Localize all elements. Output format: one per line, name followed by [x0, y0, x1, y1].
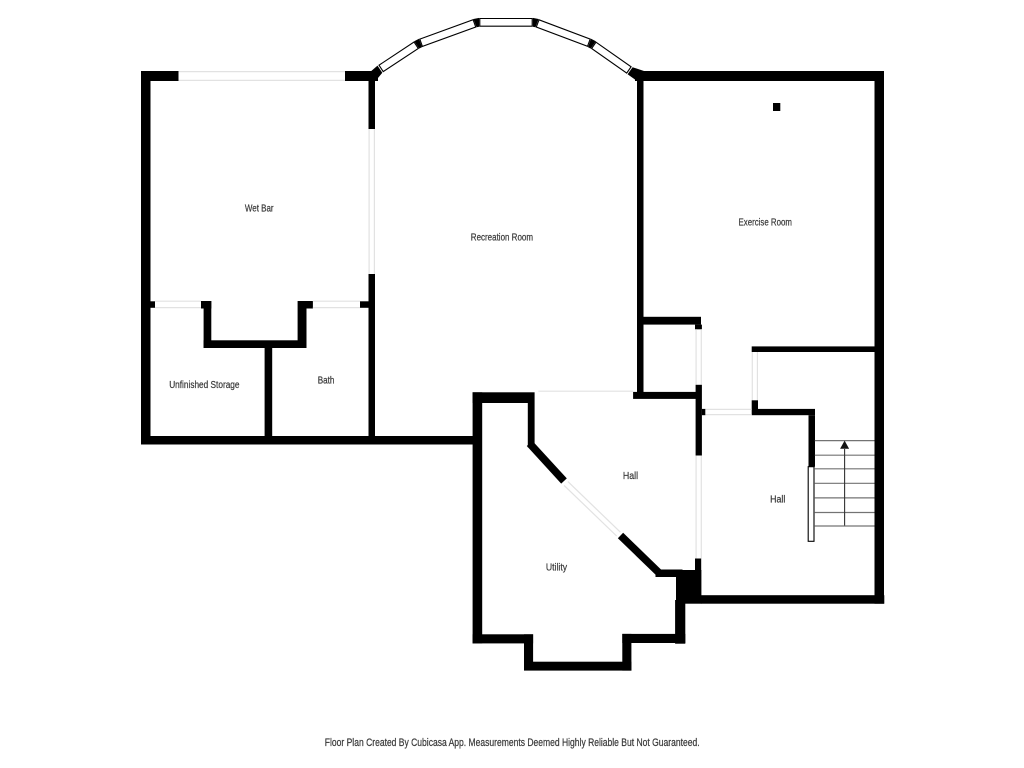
svg-text:Exercise Room: Exercise Room — [739, 217, 792, 228]
svg-text:Unfinished Storage: Unfinished Storage — [169, 380, 240, 391]
svg-text:Hall: Hall — [770, 495, 785, 506]
svg-text:Bath: Bath — [318, 376, 335, 387]
svg-text:Utility: Utility — [546, 563, 567, 574]
svg-text:Wet Bar: Wet Bar — [245, 204, 274, 215]
svg-text:Floor Plan Created By Cubicasa: Floor Plan Created By Cubicasa App. Meas… — [325, 737, 700, 749]
svg-text:Hall: Hall — [623, 471, 638, 482]
svg-text:Recreation Room: Recreation Room — [471, 232, 533, 243]
